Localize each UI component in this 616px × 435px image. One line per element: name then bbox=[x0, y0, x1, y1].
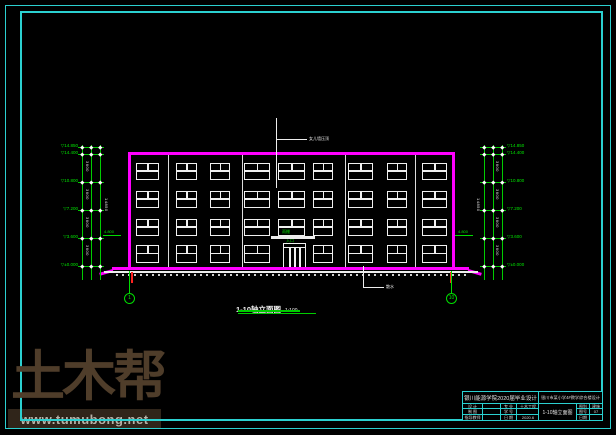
dimension-line bbox=[502, 145, 503, 280]
level-label: ▽7.200 bbox=[40, 206, 78, 211]
tick-mark bbox=[98, 236, 102, 240]
downpipe-line bbox=[345, 155, 346, 270]
window bbox=[387, 163, 407, 180]
canopy-label: 雨棚 bbox=[282, 229, 290, 234]
window bbox=[422, 191, 447, 208]
caption-underline bbox=[238, 310, 300, 312]
tick-mark bbox=[500, 145, 504, 149]
tick-mark bbox=[500, 208, 504, 212]
window bbox=[313, 219, 333, 236]
tick-mark bbox=[98, 152, 102, 156]
tick-mark bbox=[482, 145, 486, 149]
ground-leader-line bbox=[363, 266, 364, 287]
dimension-text: 3600 bbox=[495, 189, 499, 200]
window bbox=[244, 163, 270, 180]
titleblock-school: 银川能源学院2020届毕业设计 bbox=[463, 392, 539, 403]
tick-mark bbox=[89, 236, 93, 240]
level-label: ▽14.850 bbox=[40, 143, 78, 148]
window bbox=[136, 163, 159, 180]
window bbox=[348, 163, 373, 180]
level-label: ▽7.200 bbox=[507, 206, 545, 211]
tick-mark bbox=[482, 208, 486, 212]
window bbox=[210, 219, 230, 236]
cad-sheet: www.tumubong.net 雨棚 入口 1 10 女儿墙压顶 bbox=[0, 0, 616, 435]
tick-mark bbox=[80, 145, 84, 149]
window bbox=[244, 191, 270, 208]
window bbox=[176, 163, 197, 180]
dimension-text: 3600 bbox=[495, 217, 499, 228]
dimension-line bbox=[82, 145, 83, 280]
level-label: ▽14.400 bbox=[507, 150, 545, 155]
window bbox=[422, 245, 447, 263]
titleblock-left-table: 设 计 专 业 土木工程 制 图 学 号 指导教师 日 期 2020.6 bbox=[463, 404, 539, 420]
level-label: ▽±0.000 bbox=[40, 262, 78, 267]
level-label: ▽14.850 bbox=[507, 143, 545, 148]
tick-mark bbox=[491, 145, 495, 149]
window bbox=[176, 245, 197, 263]
window bbox=[387, 245, 407, 263]
window bbox=[210, 245, 230, 263]
tb-value: 2020.6 bbox=[517, 415, 539, 420]
window bbox=[348, 191, 373, 208]
window bbox=[176, 191, 197, 208]
titleblock-drawing-title: 1-10轴立面图 bbox=[539, 404, 577, 420]
title-block: 银川能源学院2020届毕业设计 银川市某小学4#教学综合楼设计 设 计 专 业 … bbox=[462, 391, 603, 421]
level-label: ▽10.800 bbox=[40, 178, 78, 183]
window bbox=[210, 163, 230, 180]
tick-mark bbox=[80, 208, 84, 212]
window bbox=[136, 219, 159, 236]
tb-label: 指导教师 bbox=[463, 415, 483, 420]
tick-mark bbox=[500, 180, 504, 184]
ground-leader-arm bbox=[363, 287, 384, 288]
window bbox=[136, 245, 159, 263]
section-mark-left bbox=[131, 272, 133, 283]
window bbox=[387, 219, 407, 236]
side-level-right: 4.800 bbox=[458, 229, 468, 234]
window bbox=[176, 219, 197, 236]
tick-mark bbox=[98, 208, 102, 212]
level-label: ▽14.400 bbox=[40, 150, 78, 155]
dimension-text: 3600 bbox=[85, 161, 89, 172]
ground-line bbox=[104, 271, 478, 273]
axis-line-right bbox=[451, 271, 452, 293]
tick-mark bbox=[80, 264, 84, 268]
caption-underline-2 bbox=[238, 313, 316, 314]
entrance-label: 入口 bbox=[286, 238, 294, 243]
tick-mark bbox=[482, 236, 486, 240]
roof-leader-line bbox=[276, 118, 277, 188]
tick-mark bbox=[80, 180, 84, 184]
side-level-left: 4.800 bbox=[104, 229, 114, 234]
roof-leader-arm bbox=[276, 139, 307, 140]
watermark-logo: 土木帮 bbox=[11, 348, 161, 408]
tick-mark bbox=[482, 152, 486, 156]
tick-mark bbox=[89, 145, 93, 149]
drawing-caption: 1-10轴立面图1:100 bbox=[236, 299, 346, 317]
dimension-line bbox=[100, 145, 101, 280]
dimension-text-total: 14850 bbox=[476, 198, 480, 212]
tick-mark bbox=[491, 180, 495, 184]
window bbox=[387, 191, 407, 208]
window bbox=[348, 245, 373, 263]
downpipe-line bbox=[242, 155, 243, 270]
tick-mark bbox=[482, 264, 486, 268]
tb-value bbox=[483, 415, 501, 420]
window bbox=[422, 219, 447, 236]
tb-label: 日期 bbox=[577, 415, 590, 420]
tick-mark bbox=[98, 180, 102, 184]
dimension-line bbox=[493, 145, 494, 280]
ground-hatch bbox=[116, 274, 468, 276]
window bbox=[313, 163, 333, 180]
window bbox=[244, 219, 270, 236]
tick-mark bbox=[482, 180, 486, 184]
dimension-text: 3600 bbox=[85, 245, 89, 256]
tick-mark bbox=[500, 264, 504, 268]
tick-mark bbox=[89, 208, 93, 212]
dimension-line bbox=[91, 145, 92, 280]
downpipe-line bbox=[168, 155, 169, 270]
tick-mark bbox=[491, 208, 495, 212]
tick-mark bbox=[80, 236, 84, 240]
level-label: ▽3.600 bbox=[40, 234, 78, 239]
ground-leader-text: 散水 bbox=[386, 284, 394, 289]
level-label: ▽±0.000 bbox=[507, 262, 545, 267]
window bbox=[313, 191, 333, 208]
axis-bubble-right: 10 bbox=[446, 293, 457, 304]
tick-mark bbox=[98, 145, 102, 149]
window bbox=[278, 163, 305, 180]
level-label: ▽10.800 bbox=[507, 178, 545, 183]
tick-mark bbox=[98, 264, 102, 268]
side-level-right-line bbox=[455, 235, 473, 236]
dimension-text-total: 14850 bbox=[104, 198, 108, 212]
dimension-text: 3600 bbox=[85, 189, 89, 200]
entrance-door bbox=[283, 243, 306, 270]
dimension-line bbox=[484, 145, 485, 280]
tick-mark bbox=[89, 180, 93, 184]
tick-mark bbox=[491, 152, 495, 156]
window bbox=[348, 219, 373, 236]
tb-label: 日 期 bbox=[501, 415, 517, 420]
window bbox=[244, 245, 270, 263]
tb-value bbox=[590, 415, 602, 420]
axis-line-left bbox=[129, 271, 130, 293]
titleblock-right-table: 图别 建施 图号 07 日期 bbox=[577, 404, 602, 420]
ground-magenta-line bbox=[112, 267, 469, 270]
axis-bubble-left: 1 bbox=[124, 293, 135, 304]
window bbox=[210, 191, 230, 208]
tick-mark bbox=[500, 236, 504, 240]
tick-mark bbox=[89, 264, 93, 268]
titleblock-project: 银川市某小学4#教学综合楼设计 bbox=[539, 392, 602, 403]
tick-mark bbox=[89, 152, 93, 156]
downpipe-line bbox=[415, 155, 416, 270]
window bbox=[422, 163, 447, 180]
tick-mark bbox=[491, 264, 495, 268]
window bbox=[278, 191, 305, 208]
tick-mark bbox=[491, 236, 495, 240]
tick-mark bbox=[500, 152, 504, 156]
dimension-text: 3600 bbox=[85, 217, 89, 228]
tick-mark bbox=[80, 152, 84, 156]
window bbox=[136, 191, 159, 208]
dimension-text: 3600 bbox=[495, 161, 499, 172]
side-level-left-line bbox=[103, 235, 121, 236]
level-label: ▽3.600 bbox=[507, 234, 545, 239]
roof-leader-text: 女儿墙压顶 bbox=[309, 136, 329, 141]
window bbox=[313, 245, 333, 263]
dimension-text: 3600 bbox=[495, 245, 499, 256]
